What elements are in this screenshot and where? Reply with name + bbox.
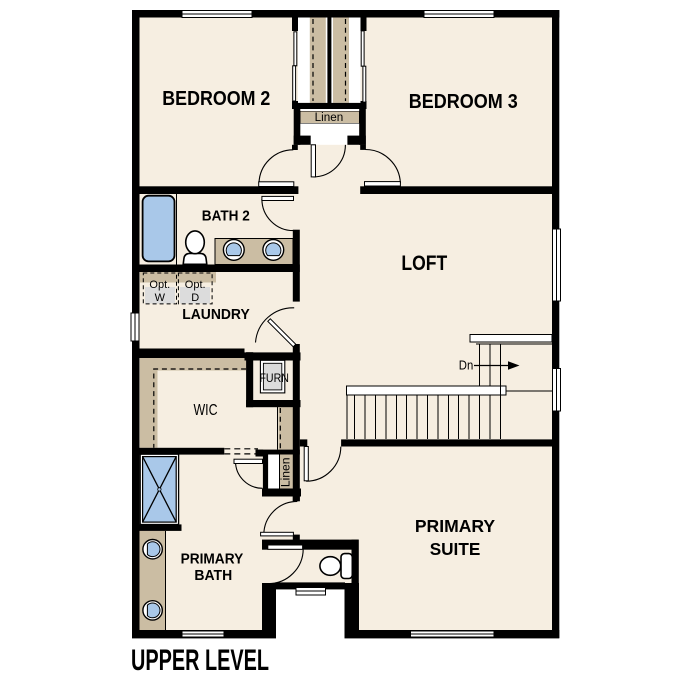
- svg-text:Linen: Linen: [280, 458, 292, 488]
- svg-text:D: D: [191, 292, 199, 304]
- svg-text:PRIMARY: PRIMARY: [415, 516, 496, 536]
- svg-text:LAUNDRY: LAUNDRY: [182, 306, 250, 323]
- svg-text:BATH 2: BATH 2: [202, 209, 250, 225]
- svg-text:BATH: BATH: [194, 568, 232, 584]
- svg-text:BEDROOM 3: BEDROOM 3: [409, 91, 518, 113]
- svg-text:BEDROOM 2: BEDROOM 2: [162, 88, 270, 110]
- svg-text:UPPER LEVEL: UPPER LEVEL: [131, 644, 269, 677]
- svg-text:Opt.: Opt.: [185, 279, 206, 291]
- svg-text:WIC: WIC: [193, 402, 217, 419]
- svg-text:SUITE: SUITE: [430, 539, 481, 559]
- svg-text:Opt.: Opt.: [149, 279, 170, 291]
- svg-text:Dn: Dn: [459, 357, 474, 372]
- svg-text:FURN: FURN: [259, 371, 289, 385]
- svg-text:PRIMARY: PRIMARY: [181, 551, 244, 567]
- svg-text:W: W: [155, 292, 166, 304]
- svg-text:LOFT: LOFT: [401, 252, 447, 275]
- svg-text:Linen: Linen: [315, 112, 344, 124]
